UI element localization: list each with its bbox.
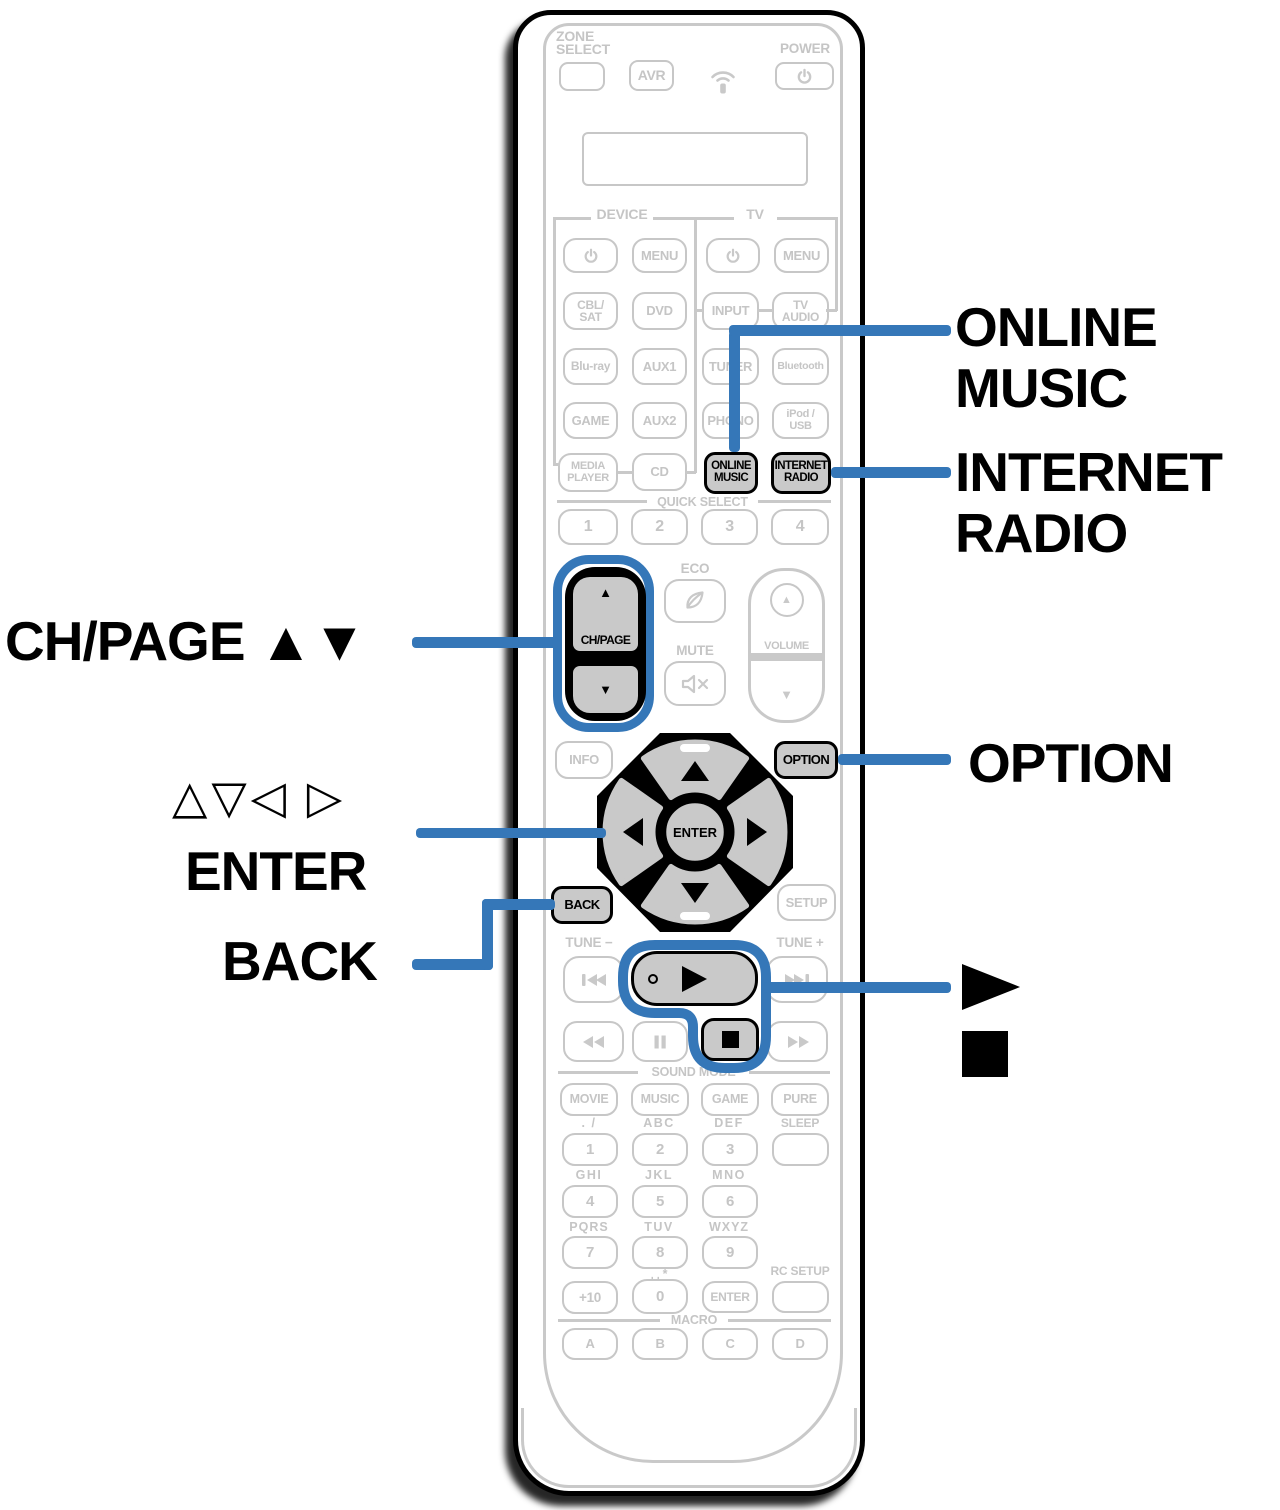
enter-callout-label: ENTER bbox=[185, 841, 366, 902]
eco-button[interactable] bbox=[664, 579, 726, 623]
aux1-button[interactable]: AUX1 bbox=[632, 348, 687, 385]
digit-4-button[interactable]: 4 bbox=[562, 1185, 618, 1218]
display-window bbox=[582, 132, 808, 186]
mute-label: MUTE bbox=[665, 643, 725, 658]
quick-select-2-button[interactable]: 2 bbox=[631, 509, 688, 545]
rc-setup-label: RC SETUP bbox=[766, 1264, 834, 1278]
keypad-enter-button[interactable]: ENTER bbox=[702, 1281, 758, 1313]
power-icon bbox=[796, 68, 813, 85]
power-icon bbox=[583, 248, 599, 264]
up-slot bbox=[680, 744, 710, 752]
ch-page-callout-label: CH/PAGE ▲▼ bbox=[5, 611, 366, 672]
sound-mode-movie-button[interactable]: MOVIE bbox=[560, 1083, 618, 1116]
rc-setup-button[interactable] bbox=[772, 1281, 829, 1313]
digit-9-button[interactable]: 9 bbox=[702, 1236, 758, 1269]
zone-select-button[interactable] bbox=[559, 62, 605, 91]
device-power-button[interactable] bbox=[563, 238, 618, 273]
power-label: POWER bbox=[777, 41, 833, 56]
back-callout-line-h1 bbox=[412, 959, 493, 970]
keypad-letters: . / bbox=[560, 1116, 618, 1130]
volume-rocker: ▲ VOLUME ▼ bbox=[748, 568, 825, 723]
keypad-letters: DEF bbox=[700, 1116, 758, 1130]
macro-a-button[interactable]: A bbox=[562, 1328, 618, 1360]
digit-5-button[interactable]: 5 bbox=[632, 1185, 688, 1218]
digit-8-button[interactable]: 8 bbox=[632, 1236, 688, 1269]
keypad-letters: MNO bbox=[700, 1168, 758, 1182]
power-button[interactable] bbox=[775, 62, 834, 90]
power-icon bbox=[725, 248, 741, 264]
up-triangle-icon: ▲ bbox=[781, 594, 792, 606]
signal-transmit-icon bbox=[709, 62, 737, 99]
macro-c-button[interactable]: C bbox=[702, 1328, 758, 1360]
sleep-label: SLEEP bbox=[771, 1116, 829, 1130]
keypad-letters: ABC bbox=[630, 1116, 688, 1130]
dvd-button[interactable]: DVD bbox=[632, 292, 687, 330]
device-section-label: DEVICE bbox=[592, 206, 652, 222]
enter-button-label: ENTER bbox=[673, 825, 718, 840]
digit-7-button[interactable]: 7 bbox=[562, 1236, 618, 1269]
option-callout-line bbox=[838, 754, 951, 765]
keypad-letters: PQRS bbox=[560, 1220, 618, 1234]
down-triangle-icon: ▼ bbox=[780, 687, 793, 702]
online-music-callout-label: ONLINEMUSIC bbox=[955, 297, 1157, 419]
stop-symbol-label bbox=[962, 1031, 1008, 1077]
device-menu-button[interactable]: MENU bbox=[632, 238, 687, 273]
cbl-sat-button[interactable]: CBL/SAT bbox=[563, 292, 618, 330]
online-music-callout-line-v bbox=[729, 331, 740, 452]
ipod-usb-button[interactable]: iPod /USB bbox=[772, 402, 829, 439]
eco-label: ECO bbox=[665, 561, 725, 576]
quick-select-4-button[interactable]: 4 bbox=[771, 509, 829, 545]
digit-3-button[interactable]: 3 bbox=[702, 1133, 758, 1166]
play-stop-callout-line bbox=[764, 982, 951, 993]
leaf-icon bbox=[683, 589, 707, 613]
quick-select-1-button[interactable]: 1 bbox=[558, 509, 618, 545]
macro-b-button[interactable]: B bbox=[632, 1328, 688, 1360]
quick-select-3-button[interactable]: 3 bbox=[701, 509, 758, 545]
volume-down-button[interactable]: ▼ bbox=[751, 671, 822, 717]
ch-page-down-button[interactable]: ▼ bbox=[573, 666, 638, 713]
rewind-icon bbox=[581, 1034, 607, 1050]
media-player-button[interactable]: MEDIAPLAYER bbox=[558, 453, 618, 492]
play-symbol-label bbox=[962, 964, 1020, 1010]
internet-radio-callout-line bbox=[831, 467, 951, 478]
volume-divider bbox=[751, 653, 822, 661]
back-callout-label: BACK bbox=[222, 931, 377, 992]
tv-menu-button[interactable]: MENU bbox=[774, 238, 829, 273]
sound-mode-music-button[interactable]: MUSIC bbox=[631, 1083, 689, 1116]
cursor-enter-callout-line bbox=[416, 828, 606, 838]
digit-2-button[interactable]: 2 bbox=[632, 1133, 688, 1166]
option-callout-label: OPTION bbox=[968, 733, 1173, 794]
aux2-button[interactable]: AUX2 bbox=[632, 402, 687, 439]
bluetooth-button[interactable]: Bluetooth bbox=[772, 348, 829, 385]
internet-radio-callout-label: INTERNETRADIO bbox=[955, 442, 1222, 564]
cd-button[interactable]: CD bbox=[632, 453, 687, 491]
sleep-button[interactable] bbox=[772, 1133, 829, 1166]
down-slot bbox=[680, 912, 710, 920]
digit-1-button[interactable]: 1 bbox=[562, 1133, 618, 1166]
online-music-button[interactable]: ONLINEMUSIC bbox=[704, 452, 758, 494]
ch-page-up-button[interactable]: ▲ CH/PAGE bbox=[573, 577, 638, 651]
keypad-letters: WXYZ bbox=[700, 1220, 758, 1234]
ch-page-button-label: CH/PAGE bbox=[581, 633, 631, 647]
play-stop-highlight bbox=[613, 935, 778, 1077]
sound-mode-pure-button[interactable]: PURE bbox=[771, 1083, 829, 1116]
avr-button[interactable]: AVR bbox=[629, 60, 674, 91]
internet-radio-button[interactable]: INTERNETRADIO bbox=[771, 452, 831, 494]
fast-forward-icon bbox=[785, 1034, 811, 1050]
mute-speaker-icon bbox=[680, 674, 710, 694]
macro-d-button[interactable]: D bbox=[772, 1328, 828, 1360]
keypad-letters: JKL bbox=[630, 1168, 688, 1182]
back-callout-line-h2 bbox=[482, 899, 555, 910]
up-triangle-icon: ▲ bbox=[599, 585, 612, 600]
sound-mode-game-button[interactable]: GAME bbox=[701, 1083, 759, 1116]
volume-up-button[interactable]: ▲ bbox=[770, 583, 804, 617]
cursor-triangles-callout-label: △▽◁ ▷ bbox=[172, 772, 346, 822]
remote-bottom-seam bbox=[521, 1408, 857, 1488]
mute-button[interactable] bbox=[664, 661, 726, 706]
digit-0-button[interactable]: 0 bbox=[632, 1279, 688, 1314]
game-button[interactable]: GAME bbox=[563, 402, 618, 439]
volume-label: VOLUME bbox=[751, 640, 822, 652]
keypad-letters: GHI bbox=[560, 1168, 618, 1182]
keypad-letters: TUV bbox=[630, 1220, 688, 1234]
bluray-button[interactable]: Blu-ray bbox=[563, 348, 618, 385]
tv-section-label: TV bbox=[735, 206, 775, 222]
macro-label: MACRO bbox=[664, 1313, 724, 1327]
tv-power-button[interactable] bbox=[706, 238, 760, 273]
cursor-pad: ENTER bbox=[585, 723, 805, 938]
down-triangle-icon: ▼ bbox=[599, 682, 612, 697]
ch-page-callout-line bbox=[412, 637, 558, 648]
quick-select-label: QUICK SELECT bbox=[650, 495, 755, 509]
digit-6-button[interactable]: 6 bbox=[702, 1185, 758, 1218]
zone-select-label: ZONESELECT bbox=[556, 30, 616, 56]
plus10-button[interactable]: +10 bbox=[562, 1281, 618, 1314]
skip-back-icon bbox=[579, 972, 609, 988]
online-music-callout-line-h bbox=[729, 325, 951, 336]
